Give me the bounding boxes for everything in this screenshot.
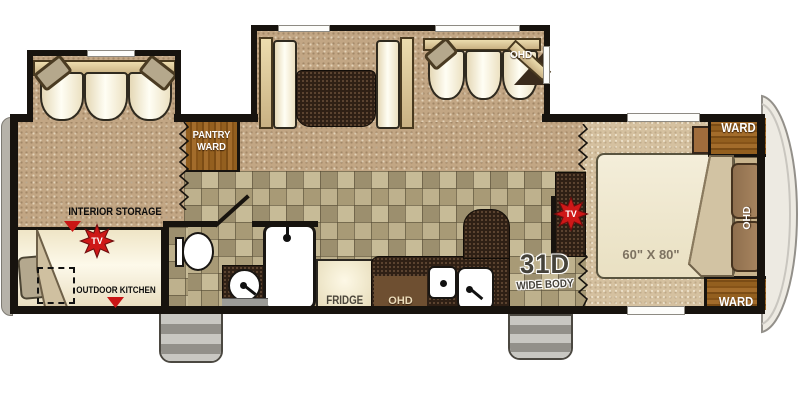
tv-star-main: TV (553, 196, 589, 232)
sofa-slideout (27, 50, 181, 122)
bedroom-ohd-label: OHD (741, 198, 753, 238)
bathroom-top-wall (163, 221, 217, 227)
step-tread (161, 324, 221, 334)
bathroom-left-wall (163, 224, 169, 306)
window-bedroom-top (627, 113, 700, 122)
rv-floorplan: PANTRY WARD OHD INTERIOR STORAGE OUTDOOR… (0, 0, 800, 400)
rear-wall (10, 114, 18, 314)
step-tread (510, 352, 571, 360)
bed-size-label: 60" X 80" (606, 247, 696, 262)
step-tread (161, 314, 221, 324)
slide-sofa-ohd-label: OHD (510, 50, 532, 61)
window-bedroom-bottom (627, 306, 685, 315)
ward-top-label: WARD (714, 121, 764, 135)
kitchen-faucet (440, 280, 447, 287)
entry-steps-bedroom (508, 314, 573, 360)
kitchen-peninsula (463, 209, 510, 259)
step-tread (161, 354, 221, 363)
window-dinette-side (543, 46, 550, 84)
window-dinette-left (278, 25, 330, 32)
step-tread (161, 334, 221, 344)
step-tread (510, 316, 571, 325)
pantry-label-line2: WARD (189, 141, 235, 153)
interior-storage-label: INTERIOR STORAGE (51, 206, 179, 218)
toilet-bowl (182, 232, 214, 271)
outdoor-kitchen-label: OUTDOOR KITCHEN (68, 285, 163, 296)
step-tread (161, 344, 221, 354)
dinette-slideout (251, 25, 550, 122)
front-wall (757, 114, 765, 314)
bedroom-seam-zigzag-top (577, 124, 589, 170)
tv-star-rear: TV (79, 223, 115, 259)
tv-label-main: TV (553, 196, 589, 232)
shower-head-dot (283, 234, 291, 242)
window-dinette-right (435, 25, 520, 32)
step-tread (510, 343, 571, 352)
step-tread (510, 334, 571, 343)
top-wall-mid (174, 114, 258, 122)
fridge: FRIDGE (316, 259, 373, 310)
pantry-cabinet: PANTRY WARD (186, 122, 240, 172)
step-tread (510, 325, 571, 334)
kitchen-counter-face: OHD (374, 276, 427, 309)
tv-label-rear: TV (79, 223, 115, 259)
model-label: 31D (507, 249, 583, 280)
slide-seam-zigzag-pantry (178, 122, 190, 210)
entertainment-wall (551, 196, 556, 256)
kitchen-sink-right (457, 267, 494, 310)
entry-steps-main (159, 312, 223, 363)
pantry-label-line1: PANTRY (189, 129, 235, 141)
shower-top-wall (252, 221, 318, 227)
window-sofa-slide (87, 50, 135, 57)
